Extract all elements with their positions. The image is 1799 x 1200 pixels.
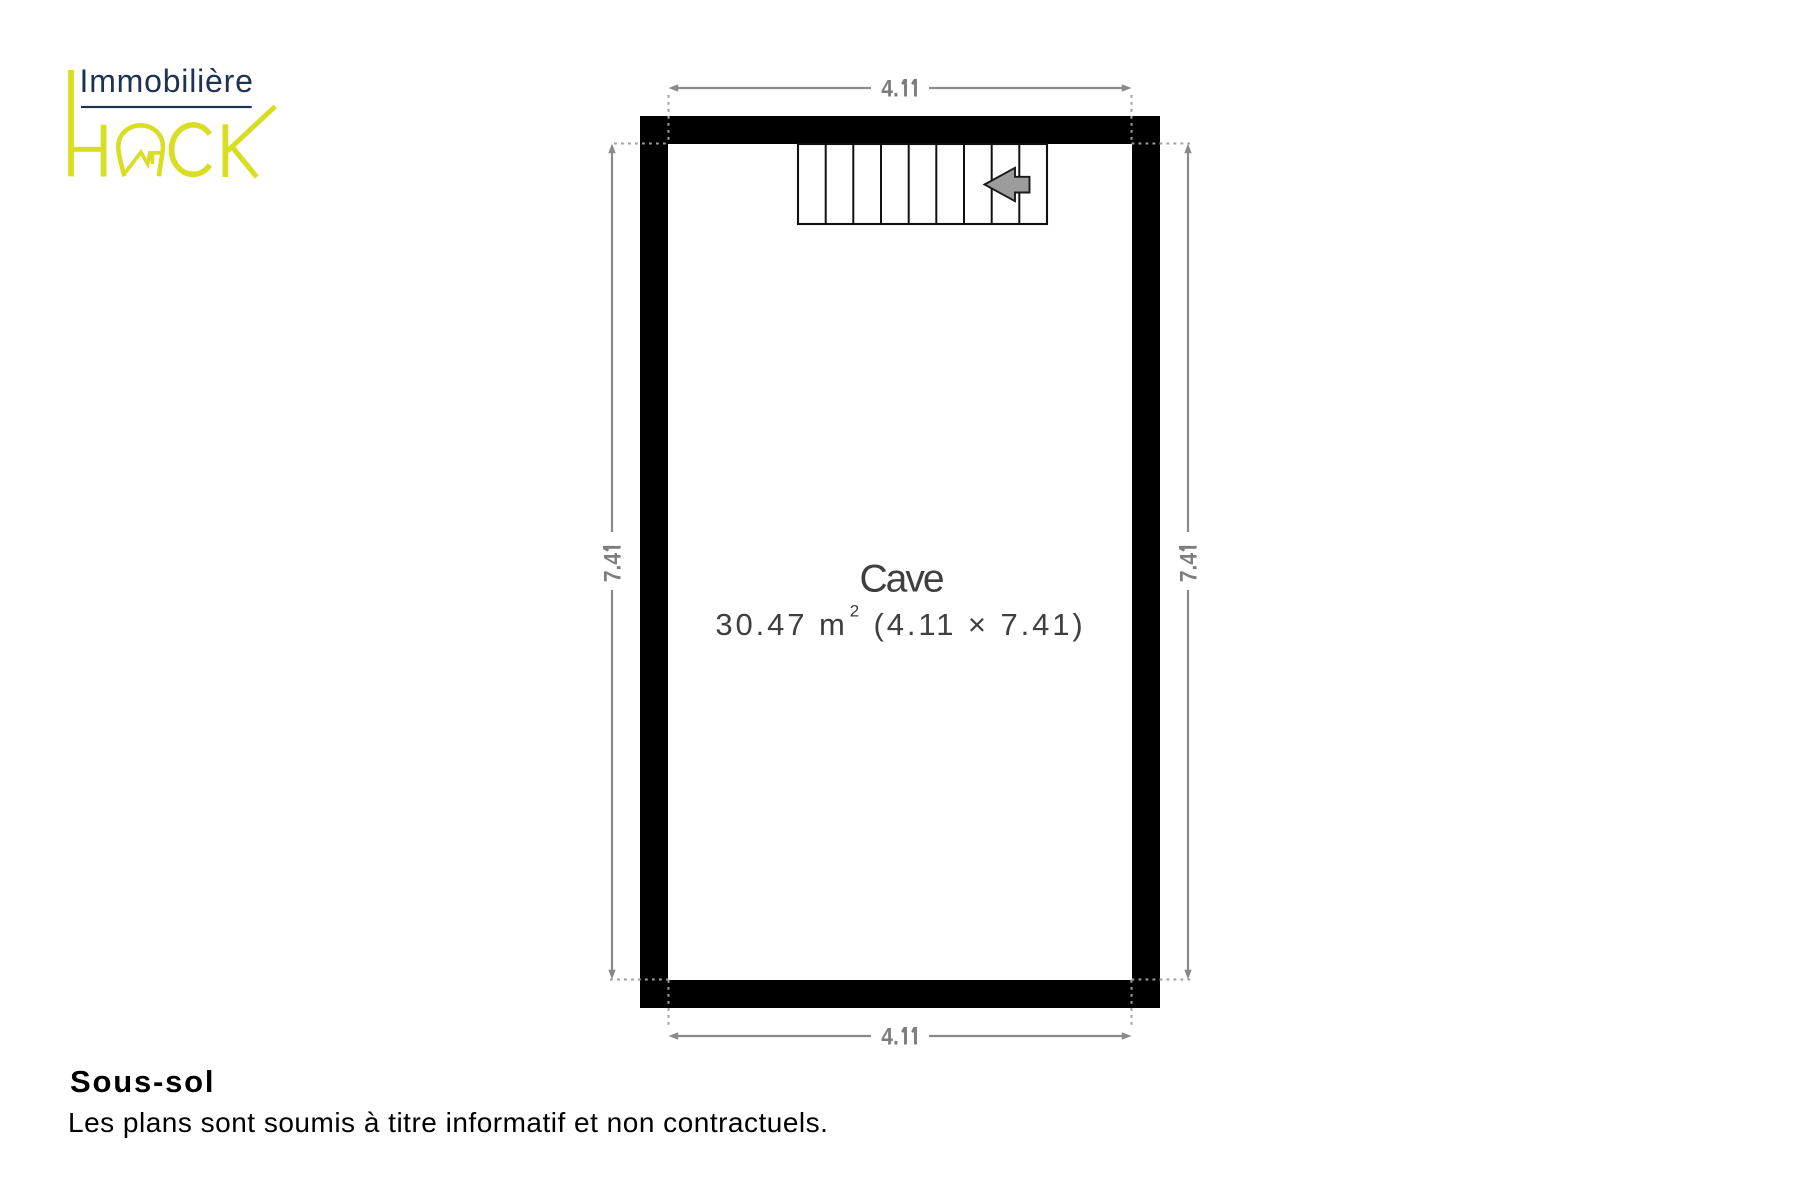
svg-text:Cave: Cave	[859, 557, 942, 600]
svg-text:Les plans sont soumis à titre: Les plans sont soumis à titre informatif…	[68, 1107, 828, 1138]
svg-text:Immobilière: Immobilière	[80, 63, 254, 99]
svg-text:Sous-sol: Sous-sol	[70, 1064, 215, 1099]
svg-text:30.47 m2 (4.11 × 7.41): 30.47 m2 (4.11 × 7.41)	[715, 601, 1085, 642]
